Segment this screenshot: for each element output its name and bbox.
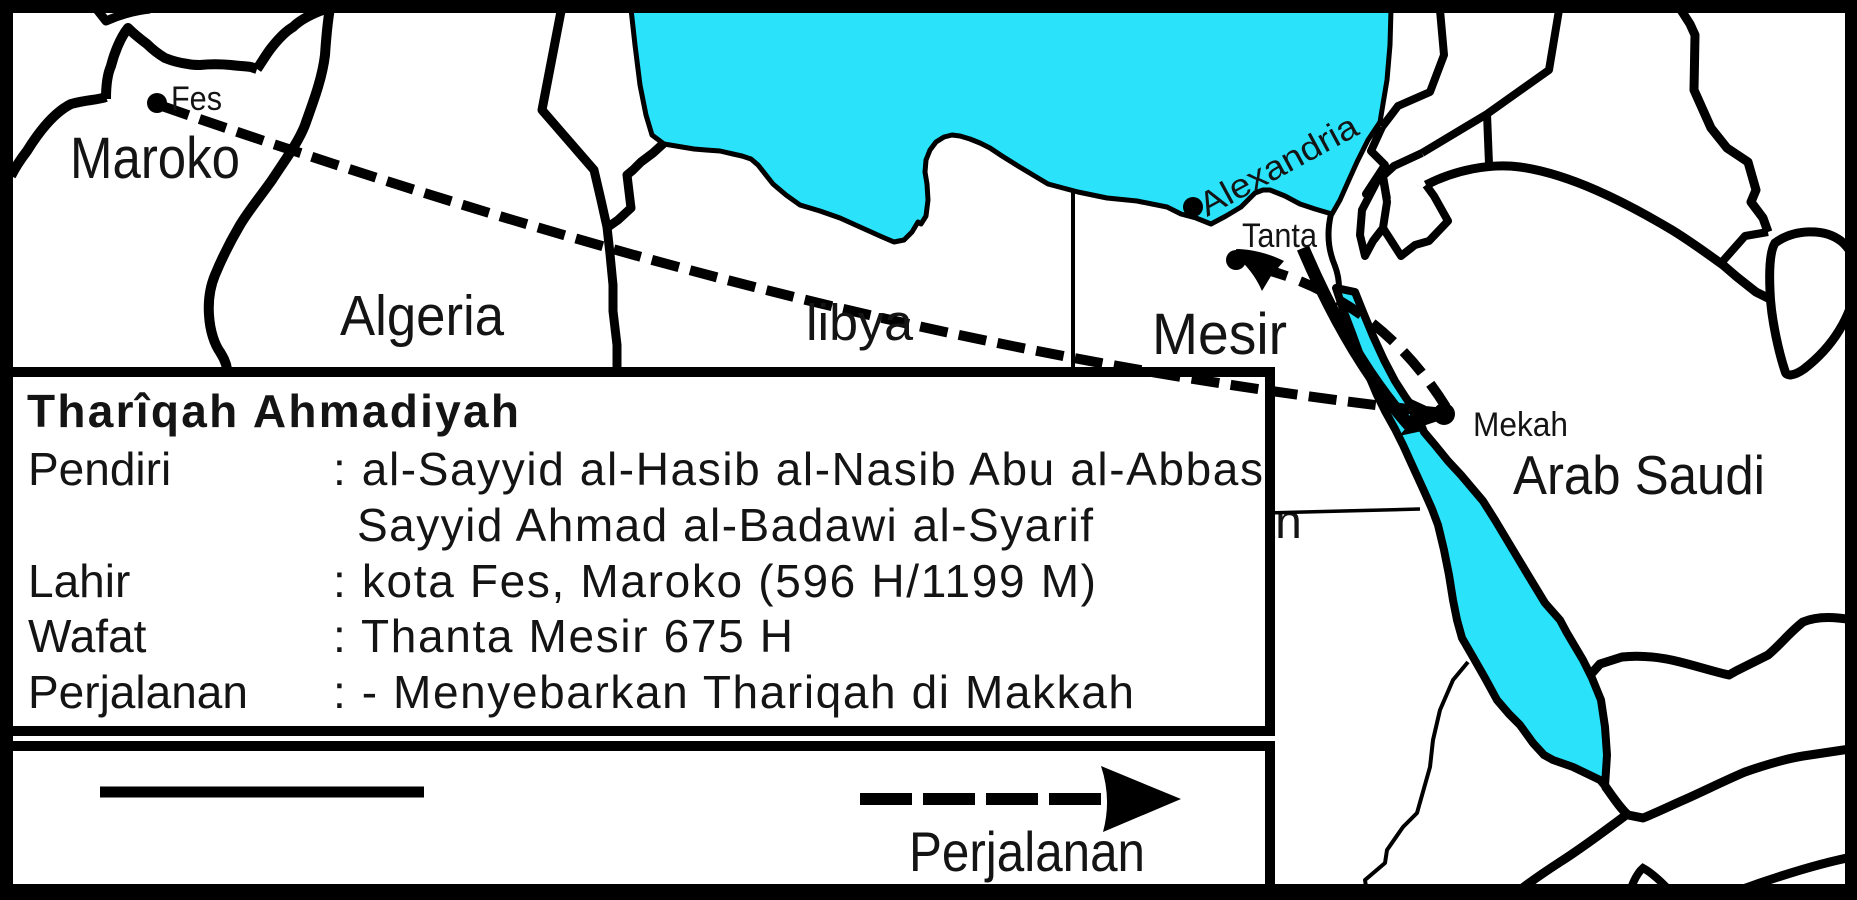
svg-text:: - Menyebarkan Thariqah di Ma: : - Menyebarkan Thariqah di Makkah xyxy=(333,666,1134,718)
svg-text:Tharîqah Ahmadiyah: Tharîqah Ahmadiyah xyxy=(27,385,519,437)
svg-text:: kota Fes, Maroko (596 H/1199: : kota Fes, Maroko (596 H/1199 M) xyxy=(333,555,1096,607)
svg-text:Algeria: Algeria xyxy=(340,284,504,348)
svg-text:Mesir: Mesir xyxy=(1152,302,1287,367)
svg-text:Tanta: Tanta xyxy=(1242,217,1317,255)
svg-text:Perjalanan: Perjalanan xyxy=(28,666,248,718)
svg-text:Maroko: Maroko xyxy=(70,126,240,191)
svg-text:Mekah: Mekah xyxy=(1473,406,1568,444)
svg-text:Perjalanan: Perjalanan xyxy=(909,820,1145,883)
svg-text:Pendiri: Pendiri xyxy=(28,443,171,495)
svg-text:Sayyid Ahmad al-Badawi al-Syar: Sayyid Ahmad al-Badawi al-Syarif xyxy=(357,499,1093,551)
svg-text:Arab Saudi: Arab Saudi xyxy=(1513,444,1765,506)
svg-text:libya: libya xyxy=(806,294,914,351)
svg-text:Lahir: Lahir xyxy=(28,555,130,607)
svg-text:: Thanta Mesir 675 H: : Thanta Mesir 675 H xyxy=(333,610,793,662)
svg-text:Wafat: Wafat xyxy=(28,610,147,662)
svg-text:: al-Sayyid al-Hasib al-Nasib: : al-Sayyid al-Hasib al-Nasib Abu al-Abb… xyxy=(333,443,1263,495)
svg-text:Fes: Fes xyxy=(171,80,222,118)
